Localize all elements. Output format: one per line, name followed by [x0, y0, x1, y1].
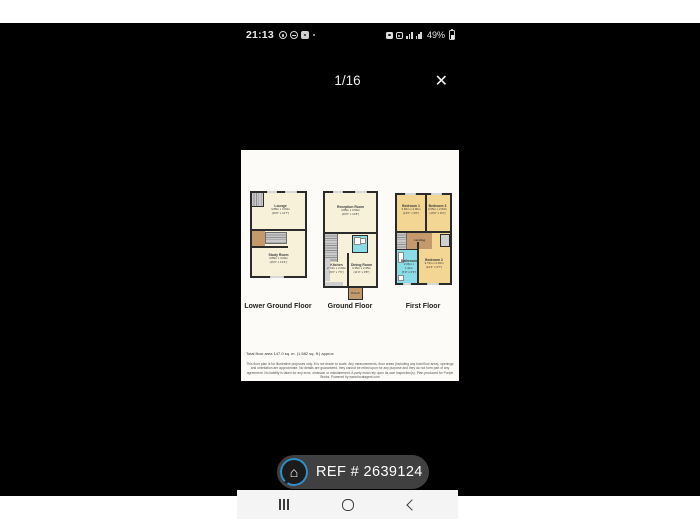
recents-icon[interactable]: [279, 499, 289, 510]
signal-bars-icon: [406, 31, 412, 39]
battery-percent-text: 49%: [427, 30, 445, 40]
stairs: [397, 233, 407, 249]
room-label-bedroom2: Bedroom 2 3.73m x 2.92m (12'3" x 9'7"): [418, 258, 450, 270]
plan-ground-floor: Reception Room 4.88m x 3.56m (16'0" x 11…: [323, 191, 378, 288]
agency-logo-icon: ⌂: [280, 458, 308, 486]
disclaimer-text: This floor plan is for illustrative purp…: [246, 362, 454, 380]
screenshot-page: 21:13 49% 1/16 ✕: [0, 0, 700, 525]
clock-text: 21:13: [246, 29, 274, 41]
page-indicator: 1/16: [237, 73, 458, 88]
signal-bars-icon: [416, 31, 422, 39]
window: [355, 191, 367, 193]
window: [270, 276, 284, 278]
photo-viewer-background: 21:13 49% 1/16 ✕: [0, 23, 700, 496]
room-label-bedroom3: Bedroom 3 3.05m x 2.84m (10'0" x 9'4"): [425, 204, 450, 216]
room-label-reception: Reception Room 4.88m x 3.56m (16'0" x 11…: [325, 205, 376, 217]
whatsapp-icon: [279, 31, 287, 39]
bathroom: Bathroom 2.06m x 1.91m (6'9" x 6'3"): [397, 250, 417, 283]
plan-first-floor: Bedroom 1 3.66m x 2.90m (12'0" x 9'6") B…: [395, 193, 452, 285]
total-floor-area-text: Total floor area 147.0 sq. m. (1,582 sq.…: [246, 351, 334, 356]
stairs: [325, 234, 338, 262]
screenshot-icon: [386, 32, 393, 39]
window: [431, 193, 442, 195]
status-bar-right: 49%: [386, 30, 455, 40]
kitchen-units: [325, 282, 343, 286]
window: [267, 191, 277, 193]
window: [405, 193, 416, 195]
wifi-calling-icon: [396, 32, 403, 39]
cupboard: [440, 234, 450, 247]
plan-lower-ground-floor: Lounge 4.88m x 3.53m (16'0" x 11'7") Stu…: [250, 191, 307, 278]
close-icon[interactable]: ✕: [435, 71, 448, 93]
wc: [352, 235, 368, 253]
room-label-dining: Dining Room 3.35m x 2.95m (11'0" x 9'8"): [347, 263, 376, 275]
room-label-landing: Landing: [407, 238, 432, 242]
lower-landing: [252, 231, 265, 246]
android-nav-bar: [237, 490, 458, 519]
room-label-lounge: Lounge 4.88m x 3.53m (16'0" x 11'7"): [256, 204, 305, 216]
window: [427, 283, 439, 285]
notification-dot-icon: [313, 34, 316, 37]
floor-title-first: First Floor: [378, 303, 468, 310]
room-label-bedroom1: Bedroom 1 3.66m x 2.90m (12'0" x 9'6"): [397, 204, 425, 216]
room-label-study: Study Room 4.88m x 4.06m (16'0" x 13'4"): [252, 253, 305, 265]
ref-number-text: REF # 2639124: [316, 464, 423, 480]
window: [333, 191, 343, 193]
window: [403, 283, 411, 285]
house-icon: ⌂: [280, 462, 308, 482]
status-bar-left: 21:13: [246, 29, 315, 41]
floorplan-image[interactable]: Lounge 4.88m x 3.53m (16'0" x 11'7") Stu…: [241, 150, 459, 381]
window: [285, 191, 297, 193]
back-icon[interactable]: [406, 499, 417, 510]
landing: Landing: [407, 233, 432, 249]
battery-icon: [449, 30, 455, 40]
alarm-icon: [290, 31, 298, 39]
room-label-kitchen: Kitchen 2.74m x 2.29m (9'0" x 7'6"): [325, 263, 348, 275]
app-badge-icon: [301, 31, 309, 39]
stairs: [265, 232, 287, 244]
status-bar: 21:13 49%: [237, 26, 458, 44]
home-icon[interactable]: [342, 499, 354, 511]
viewer-header: 1/16 ✕: [237, 69, 458, 97]
room-label-porch: Porch: [349, 291, 362, 295]
ref-badge: ⌂ REF # 2639124: [277, 455, 429, 489]
plan-ground-floor-porch: Porch: [348, 287, 363, 300]
room-label-bathroom: Bathroom 2.06m x 1.91m (6'9" x 6'3"): [401, 259, 417, 274]
